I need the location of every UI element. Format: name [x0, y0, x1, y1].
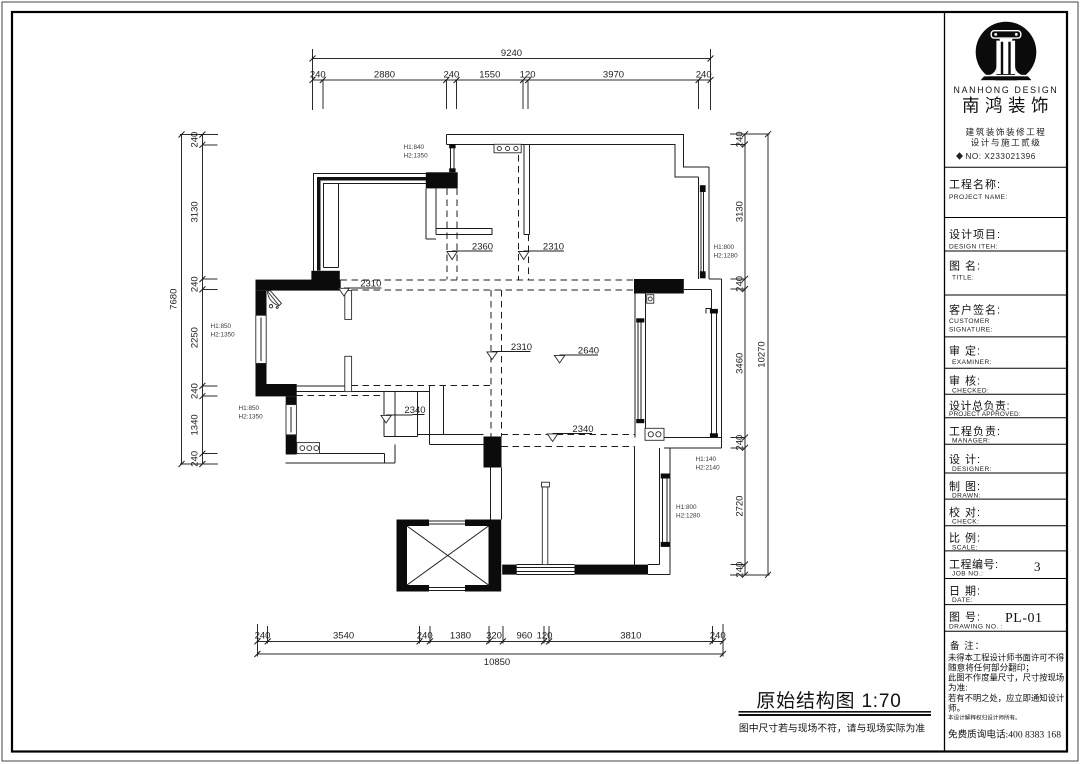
- svg-text:CUSTOMER: CUSTOMER: [949, 318, 990, 325]
- svg-text:960: 960: [516, 631, 532, 642]
- svg-text:本设计解释权归设计师所有。: 本设计解释权归设计师所有。: [948, 714, 1021, 722]
- svg-text:若有不明之处，应立即通知设计: 若有不明之处，应立即通知设计: [948, 693, 1064, 703]
- svg-text:图中尺寸若与现场不符，请与现场实际为准: 图中尺寸若与现场不符，请与现场实际为准: [739, 722, 925, 735]
- svg-text:制 图:: 制 图:: [949, 480, 981, 493]
- svg-text:设 计:: 设 计:: [949, 453, 981, 466]
- svg-text:240: 240: [710, 631, 726, 642]
- svg-text:240: 240: [443, 70, 459, 81]
- svg-text:1380: 1380: [450, 631, 471, 642]
- svg-text:工程负责:: 工程负责:: [949, 424, 1001, 438]
- svg-text:240: 240: [735, 276, 746, 292]
- svg-text:客户签名:: 客户签名:: [949, 303, 1001, 317]
- svg-text:H2:1280: H2:1280: [676, 513, 701, 520]
- svg-text:PL-01: PL-01: [1005, 611, 1043, 626]
- svg-text:H2:1350: H2:1350: [239, 414, 264, 421]
- svg-text:H1:850: H1:850: [211, 323, 232, 330]
- svg-text:设计项目:: 设计项目:: [949, 228, 1001, 241]
- svg-text:CHECK:: CHECK:: [952, 519, 979, 526]
- svg-text:MANAGER:: MANAGER:: [952, 438, 990, 445]
- svg-text:免费质询电话:400 8383 168: 免费质询电话:400 8383 168: [948, 729, 1061, 741]
- svg-text:备 注：: 备 注：: [950, 640, 985, 652]
- svg-text:H1:850: H1:850: [239, 405, 260, 412]
- svg-text:H1:800: H1:800: [714, 244, 735, 251]
- svg-text:120: 120: [520, 70, 536, 81]
- svg-text:DESIGN ITEH:: DESIGN ITEH:: [949, 244, 998, 251]
- svg-text:H2:2140: H2:2140: [696, 465, 721, 472]
- svg-text:DESIGNER:: DESIGNER:: [952, 466, 992, 473]
- svg-text:1550: 1550: [479, 70, 500, 81]
- svg-text:240: 240: [190, 276, 201, 292]
- svg-text:H1:140: H1:140: [696, 456, 717, 463]
- svg-text:DRAWING NO. :: DRAWING NO. :: [949, 624, 1003, 631]
- svg-text:3540: 3540: [333, 631, 354, 642]
- svg-text:设计与施工贰级: 设计与施工贰级: [971, 137, 1042, 148]
- svg-text:H2:1350: H2:1350: [211, 332, 236, 339]
- svg-text:240: 240: [190, 451, 201, 467]
- svg-text:2250: 2250: [190, 327, 201, 348]
- svg-text:240: 240: [310, 70, 326, 81]
- svg-text:H2:1280: H2:1280: [714, 253, 739, 260]
- svg-text:师。: 师。: [948, 702, 965, 713]
- svg-text:2880: 2880: [374, 70, 395, 81]
- svg-text:240: 240: [190, 132, 201, 148]
- svg-text:2340: 2340: [404, 405, 425, 416]
- svg-text:校 对:: 校 对:: [949, 505, 981, 519]
- svg-text:DRAWN:: DRAWN:: [952, 493, 981, 500]
- svg-text:工程编号:: 工程编号:: [949, 557, 999, 571]
- svg-text:240: 240: [417, 631, 433, 642]
- svg-text:NANHONG DESIGN: NANHONG DESIGN: [954, 85, 1059, 95]
- svg-text:1340: 1340: [190, 414, 201, 435]
- svg-text:SIGNATURE:: SIGNATURE:: [949, 327, 993, 334]
- svg-text:120: 120: [537, 631, 553, 642]
- svg-text:3970: 3970: [603, 70, 624, 81]
- svg-text:3130: 3130: [735, 201, 746, 222]
- svg-text:未得本工程设计师书面许可不得: 未得本工程设计师书面许可不得: [948, 653, 1064, 663]
- svg-text:建筑装饰装修工程: 建筑装饰装修工程: [966, 126, 1047, 137]
- svg-text:审 定:: 审 定:: [949, 344, 981, 358]
- svg-text:NO: X233021396: NO: X233021396: [966, 152, 1036, 161]
- svg-text:南鸿装饰: 南鸿装饰: [962, 96, 1054, 116]
- svg-text:图 号:: 图 号:: [949, 611, 981, 624]
- svg-text:9240: 9240: [501, 48, 522, 59]
- svg-text:DATE:: DATE:: [952, 597, 973, 604]
- svg-text:2310: 2310: [360, 278, 381, 289]
- svg-text:3810: 3810: [620, 631, 641, 642]
- svg-text:TITLE:: TITLE:: [952, 275, 974, 282]
- svg-text:240: 240: [696, 70, 712, 81]
- svg-text:工程名称:: 工程名称:: [949, 177, 1001, 191]
- svg-text:2310: 2310: [543, 241, 564, 252]
- svg-text:PROJECT APPROVED:: PROJECT APPROVED:: [949, 411, 1021, 418]
- svg-text:JOB NO.:: JOB NO.:: [952, 571, 983, 578]
- svg-text:日 期:: 日 期:: [949, 585, 981, 598]
- svg-text:240: 240: [735, 562, 746, 578]
- svg-text:240: 240: [735, 435, 746, 451]
- svg-text:EXAMINER:: EXAMINER:: [952, 359, 992, 366]
- svg-text:为准:: 为准:: [948, 682, 968, 693]
- svg-text:H1:800: H1:800: [676, 504, 697, 511]
- svg-text:240: 240: [255, 631, 271, 642]
- svg-text:2310: 2310: [511, 342, 532, 353]
- svg-text:2640: 2640: [578, 345, 599, 356]
- svg-text:审 核:: 审 核:: [949, 374, 981, 388]
- svg-text:320: 320: [486, 631, 502, 642]
- svg-text:H2:1350: H2:1350: [404, 153, 429, 160]
- svg-text:7680: 7680: [169, 289, 180, 310]
- svg-text:240: 240: [190, 383, 201, 399]
- svg-text:240: 240: [735, 131, 746, 147]
- svg-text:SCALE:: SCALE:: [952, 545, 978, 552]
- svg-text:随意将任何部分翻印；: 随意将任何部分翻印；: [948, 662, 1034, 673]
- svg-text:PROJECT NAME:: PROJECT NAME:: [949, 194, 1008, 201]
- svg-text:2720: 2720: [735, 496, 746, 517]
- svg-text:CHECKED:: CHECKED:: [952, 388, 989, 395]
- svg-text:比 例:: 比 例:: [949, 531, 981, 545]
- svg-text:此图不作度量尺寸，尺寸按现场: 此图不作度量尺寸，尺寸按现场: [948, 673, 1064, 683]
- svg-text:H1:840: H1:840: [404, 144, 425, 151]
- svg-text:10850: 10850: [484, 657, 510, 668]
- svg-text:3460: 3460: [735, 353, 746, 374]
- svg-text:3: 3: [1034, 559, 1041, 574]
- svg-text:图 名:: 图 名:: [949, 259, 981, 273]
- svg-text:原始结构图 1:70: 原始结构图 1:70: [756, 690, 901, 712]
- svg-text:2340: 2340: [572, 424, 593, 435]
- svg-text:10270: 10270: [757, 341, 768, 367]
- svg-text:2360: 2360: [472, 241, 493, 252]
- svg-text:3130: 3130: [190, 201, 201, 222]
